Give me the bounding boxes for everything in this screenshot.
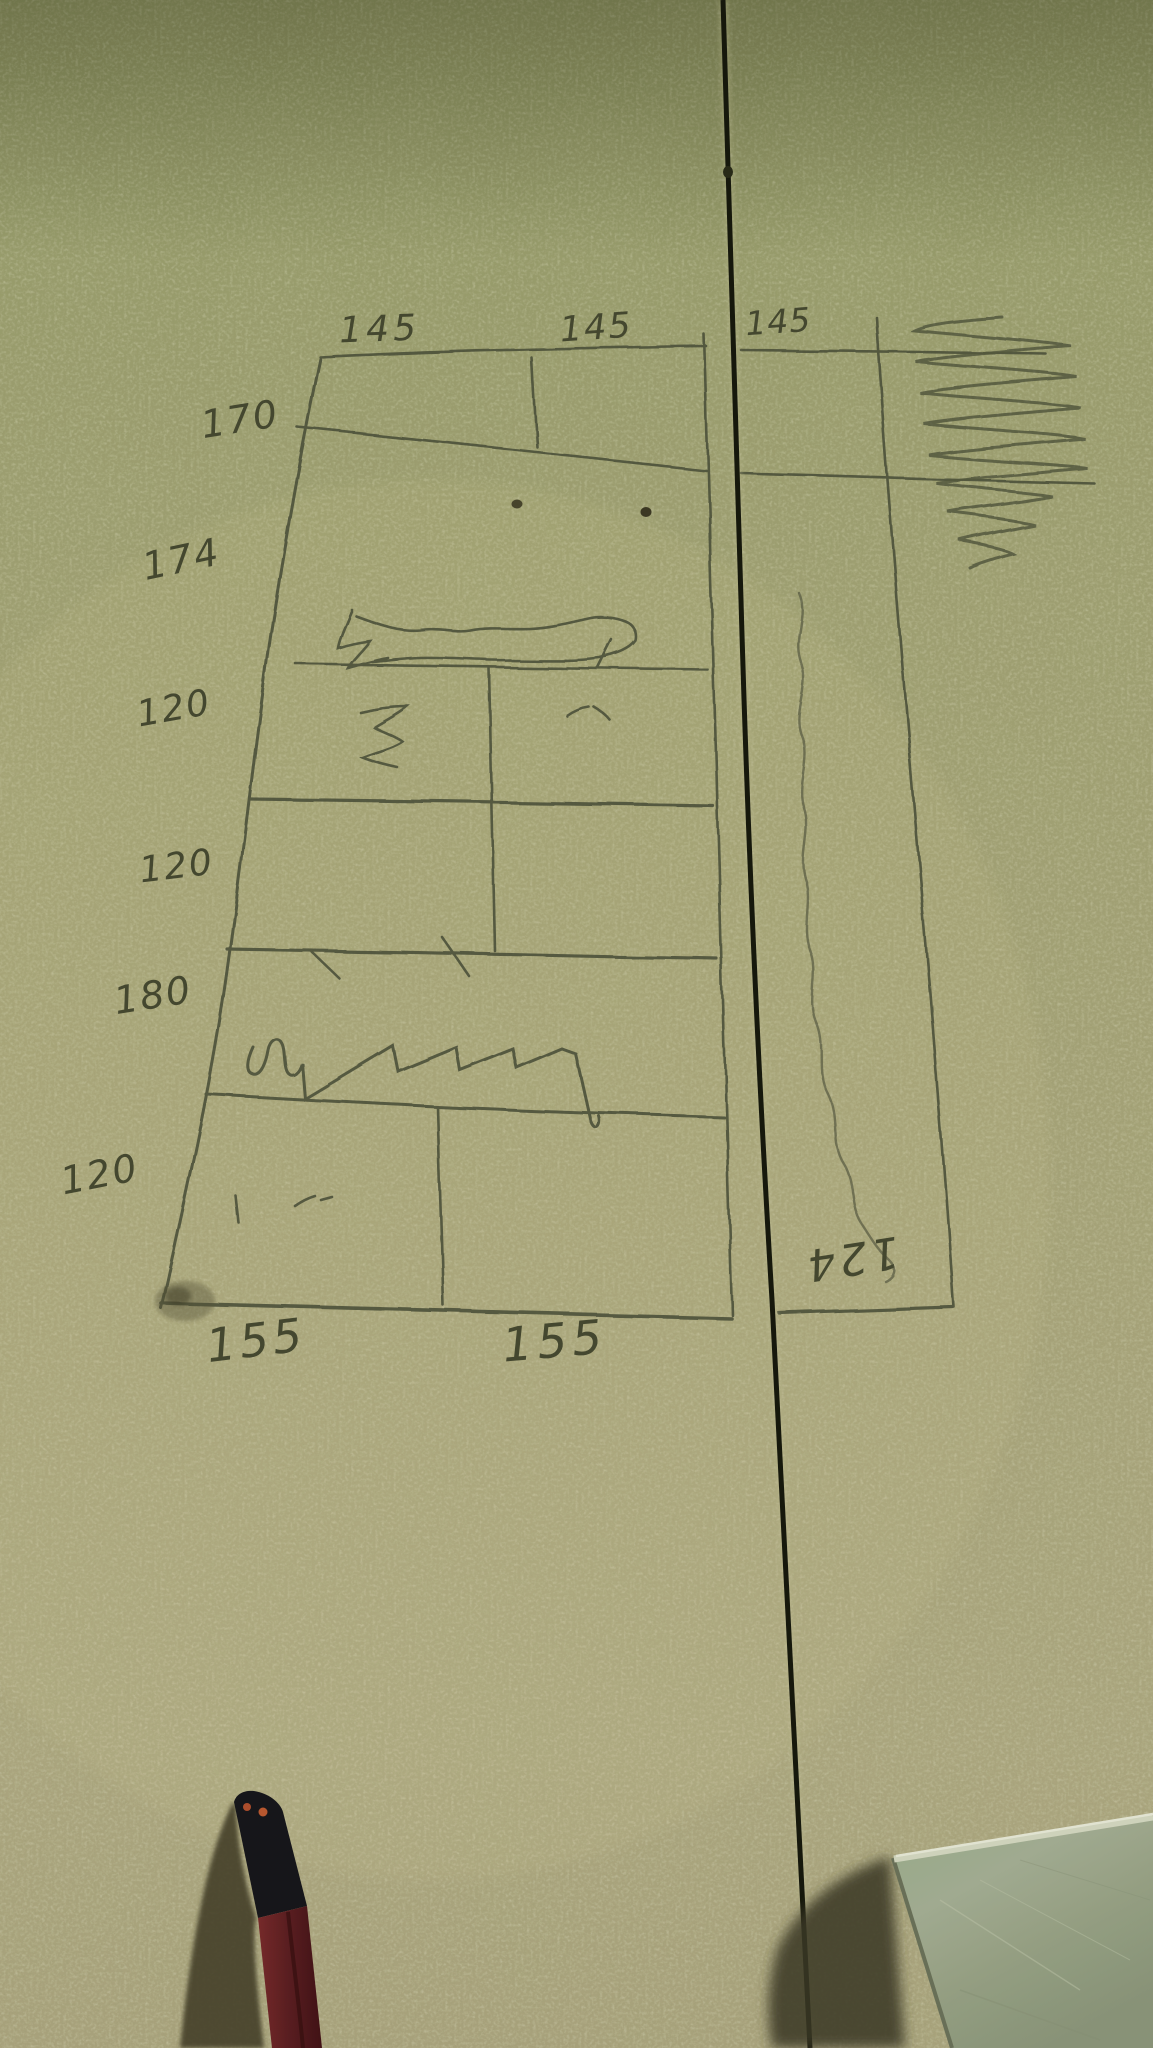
chipboard-photo: 145 145 145 170 174 120 120 180 120 155 … bbox=[0, 0, 1153, 2048]
photo-canvas: 145 145 145 170 174 120 120 180 120 155 … bbox=[0, 0, 1153, 2048]
vignette bbox=[0, 0, 1153, 2048]
